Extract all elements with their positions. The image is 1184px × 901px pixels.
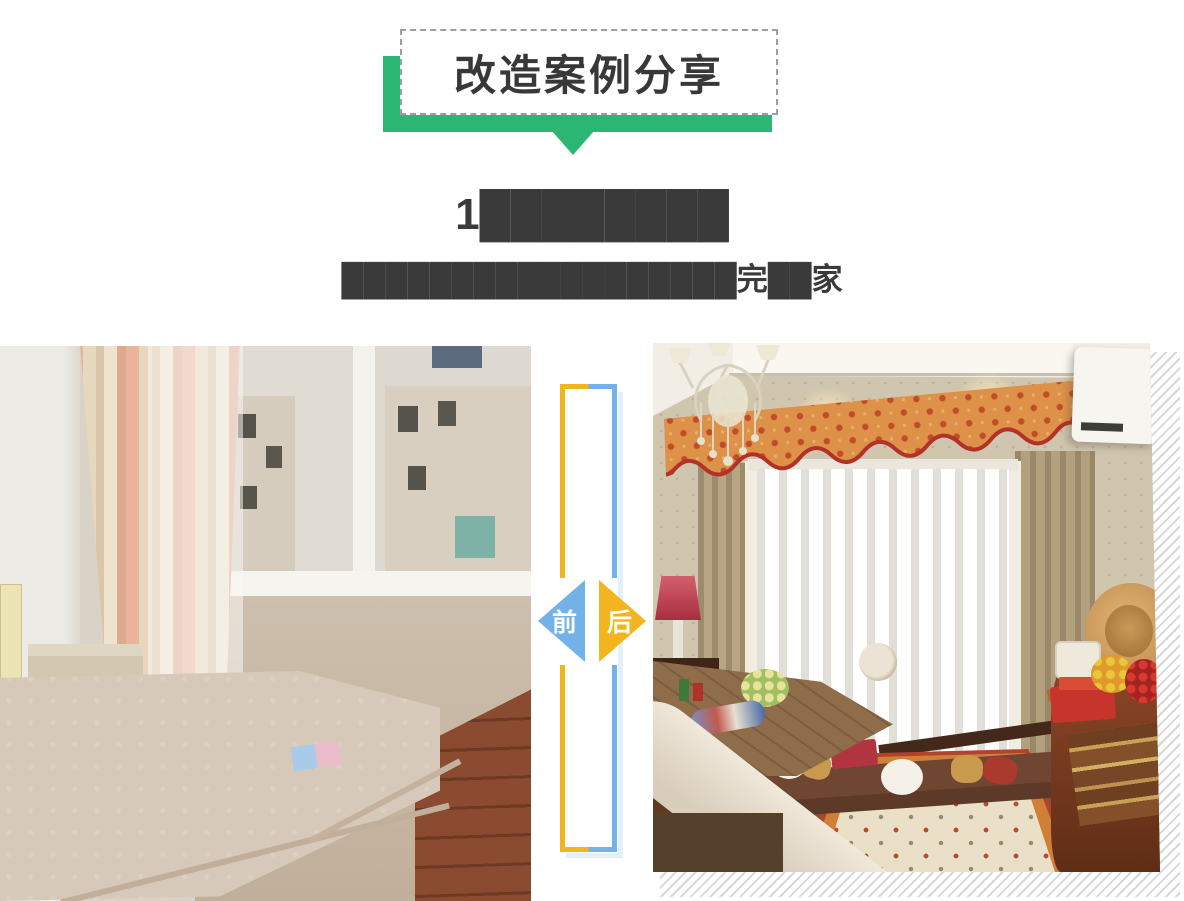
building-window xyxy=(408,466,426,490)
page: 改造案例分享 1████████ ██████████████████完██家 xyxy=(0,0,1184,901)
before-arrow: 前 xyxy=(538,580,585,662)
pillow-gold xyxy=(951,755,983,783)
straw-hat-crown xyxy=(1105,605,1153,657)
candle-red xyxy=(693,683,703,701)
building-window-teal xyxy=(455,516,495,558)
building-window-frame xyxy=(432,346,482,368)
building-window xyxy=(266,446,282,468)
divider-border-left xyxy=(560,384,565,578)
divider-border-top xyxy=(560,384,617,389)
candle-green xyxy=(679,679,689,701)
banner-pointer-triangle xyxy=(551,130,595,155)
case-title: 1████████ xyxy=(0,190,1184,240)
footboard-scroll xyxy=(859,643,897,681)
after-label: 后 xyxy=(607,603,632,639)
before-after-divider: 前 后 xyxy=(538,384,650,858)
divider-border-right xyxy=(612,665,617,852)
lamp-base xyxy=(673,620,683,660)
lamp-shade xyxy=(655,576,701,620)
banner-title: 改造案例分享 xyxy=(454,42,724,103)
ac-vent xyxy=(1081,422,1123,431)
before-photo xyxy=(0,346,531,901)
divider-border-right xyxy=(612,384,617,578)
radiator xyxy=(0,584,22,686)
chandelier xyxy=(653,343,803,473)
window-mullion xyxy=(353,346,375,578)
sheer-curtain xyxy=(148,346,243,686)
underbed-shadow xyxy=(653,813,783,872)
book-stack xyxy=(1067,722,1160,826)
after-photo xyxy=(653,343,1160,872)
nightstand-top xyxy=(28,644,143,656)
divider-border-bottom xyxy=(560,847,617,852)
window-sill xyxy=(195,571,531,596)
banner-title-box: 改造案例分享 xyxy=(400,29,778,115)
case-subtitle: ██████████████████完██家 xyxy=(0,261,1184,299)
before-label: 前 xyxy=(552,603,577,639)
pillow-fur xyxy=(881,759,923,795)
divider-border-left xyxy=(560,665,565,852)
building-window xyxy=(438,401,456,426)
building-window xyxy=(398,406,418,432)
red-flowers xyxy=(1125,659,1160,703)
